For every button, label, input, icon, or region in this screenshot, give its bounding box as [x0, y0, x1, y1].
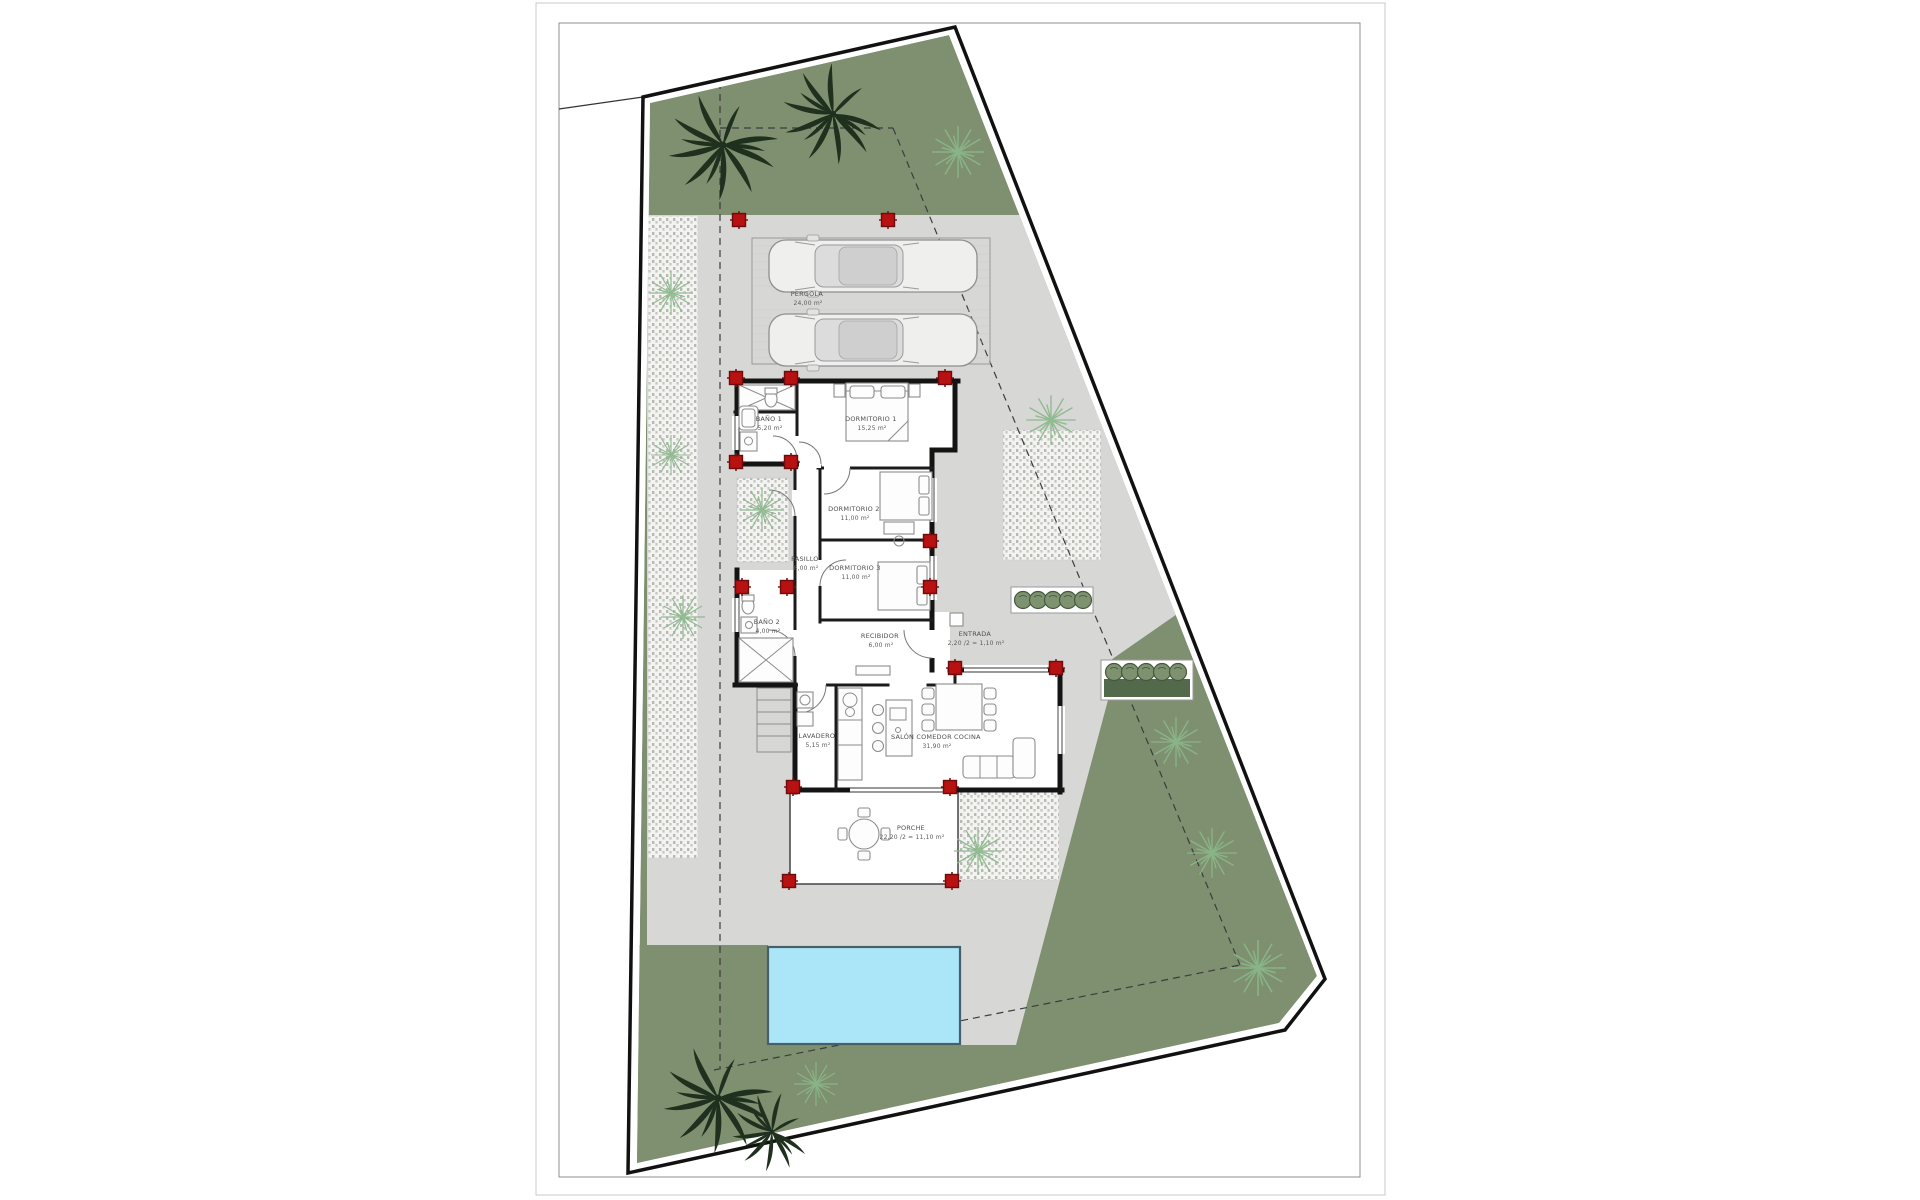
column-pillar	[1047, 659, 1065, 677]
bush-icon	[1122, 664, 1139, 681]
car-icon	[769, 235, 977, 297]
column-pillar	[778, 578, 796, 596]
furniture-dining	[922, 684, 996, 731]
column-pillar	[782, 369, 800, 387]
column-pillar	[727, 369, 745, 387]
bush-icon	[1154, 664, 1171, 681]
column-pillar	[946, 659, 964, 677]
column-pillar	[730, 211, 748, 229]
column-pillar	[733, 578, 751, 596]
column-pillar	[727, 453, 745, 471]
column-pillar	[780, 872, 798, 890]
column-pillar	[936, 369, 954, 387]
column-pillar	[921, 578, 939, 596]
bush-icon	[1170, 664, 1187, 681]
floor-plan-drawing: PERGOLA 24,00 m² DORMITORIO 1 15,25 m² B…	[0, 0, 1920, 1200]
column-pillar	[784, 778, 802, 796]
pebble-patch-porch	[957, 790, 1059, 880]
column-pillar	[941, 778, 959, 796]
bush-icon	[1075, 592, 1092, 609]
swimming-pool	[768, 947, 960, 1044]
floor-plan-page: PERGOLA 24,00 m² DORMITORIO 1 15,25 m² B…	[0, 0, 1920, 1200]
column-pillar	[782, 453, 800, 471]
hedge-planter-upper	[1011, 587, 1093, 613]
furniture-dormitorio-3	[878, 562, 930, 610]
pebble-patch-east	[1003, 430, 1101, 560]
entrance-step	[950, 613, 963, 626]
column-pillar	[879, 211, 897, 229]
column-pillar	[943, 872, 961, 890]
column-pillar	[921, 532, 939, 550]
furniture-recibidor	[856, 666, 890, 675]
bush-icon	[1106, 664, 1123, 681]
hedge-planter-lower	[1101, 660, 1193, 700]
bush-icon	[1138, 664, 1155, 681]
car-icon	[769, 309, 977, 371]
pebble-strip-left	[648, 216, 698, 858]
